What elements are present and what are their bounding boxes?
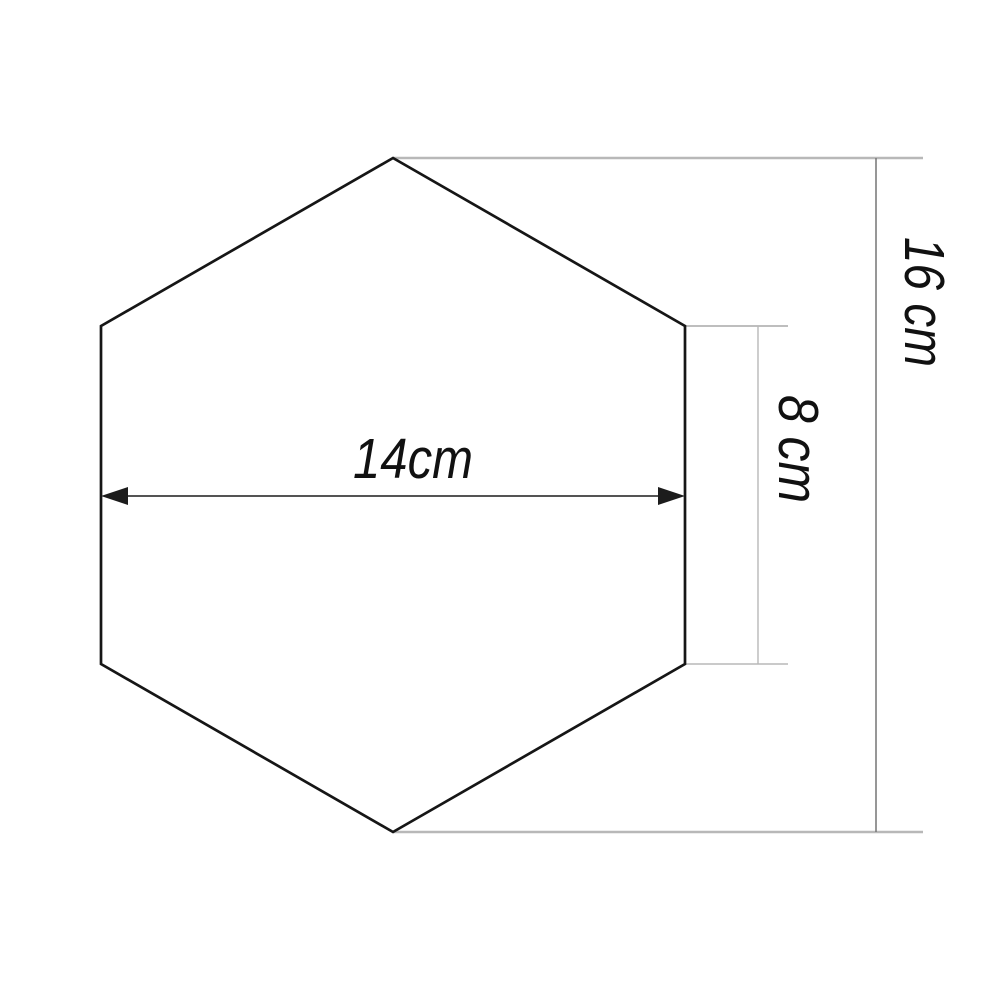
side-dimension-label: 8 cm xyxy=(766,395,830,503)
width-dimension-label: 14cm xyxy=(353,427,473,491)
arrowhead-left-icon xyxy=(101,487,128,505)
hexagon-dimension-diagram: 14cm 8 cm 16 cm xyxy=(0,0,1000,1000)
hexagon-shape xyxy=(101,158,685,832)
height-dimension-label: 16 cm xyxy=(892,237,956,367)
diagram-canvas: 14cm 8 cm 16 cm xyxy=(0,0,1000,1000)
arrowhead-right-icon xyxy=(658,487,685,505)
